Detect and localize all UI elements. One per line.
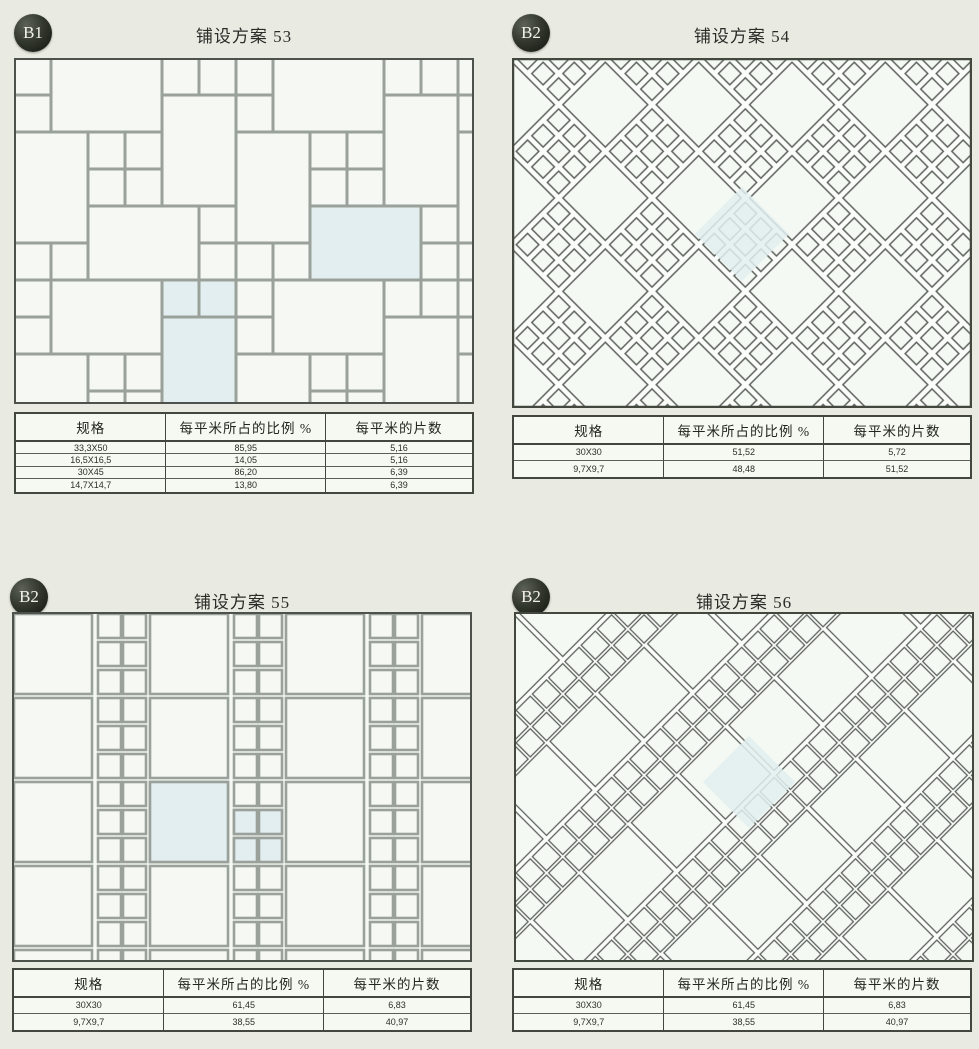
cell-pieces: 5,16 bbox=[326, 442, 472, 454]
col-header-ratio: 每平米所占的比例 % bbox=[664, 417, 824, 443]
cell-pieces: 6,83 bbox=[324, 998, 470, 1014]
table-54-header-row: 规格 每平米所占的比例 % 每平米的片数 bbox=[514, 417, 970, 445]
cell-pieces: 5,72 bbox=[824, 445, 970, 461]
panel-53-title: 铺设方案 53 bbox=[14, 22, 474, 47]
col-header-pieces: 每平米的片数 bbox=[326, 414, 472, 440]
cell-spec: 16,5X16,5 bbox=[16, 454, 166, 466]
panel-scheme-54: B2 铺设方案 54 规格 每平 bbox=[498, 0, 979, 520]
cell-spec: 9,7X9,7 bbox=[514, 461, 664, 477]
cell-spec: 14,7X14,7 bbox=[16, 479, 166, 491]
cell-pieces: 40,97 bbox=[824, 1014, 970, 1030]
table-row: 9,7X9,7 38,55 40,97 bbox=[14, 1014, 470, 1030]
panel-scheme-55: B2 铺设方案 55 规格 每平米所占的比例 % 每平米 bbox=[0, 564, 489, 1049]
col-header-spec: 规格 bbox=[514, 970, 664, 996]
cell-pieces: 5,16 bbox=[326, 454, 472, 466]
cell-spec: 30X45 bbox=[16, 467, 166, 479]
col-header-spec: 规格 bbox=[16, 414, 166, 440]
table-56-header-row: 规格 每平米所占的比例 % 每平米的片数 bbox=[514, 970, 970, 998]
cell-pieces: 40,97 bbox=[324, 1014, 470, 1030]
panel-56-title: 铺设方案 56 bbox=[514, 588, 974, 613]
col-header-ratio: 每平米所占的比例 % bbox=[664, 970, 824, 996]
col-header-pieces: 每平米的片数 bbox=[824, 417, 970, 443]
table-row: 9,7X9,7 38,55 40,97 bbox=[514, 1014, 970, 1030]
cell-spec: 30X30 bbox=[514, 445, 664, 461]
panel-55-title: 铺设方案 55 bbox=[12, 588, 472, 613]
cell-spec: 30X30 bbox=[514, 998, 664, 1014]
cell-ratio: 48,48 bbox=[664, 461, 824, 477]
cell-ratio: 38,55 bbox=[164, 1014, 324, 1030]
cell-spec: 30X30 bbox=[14, 998, 164, 1014]
cell-spec: 9,7X9,7 bbox=[514, 1014, 664, 1030]
col-header-ratio: 每平米所占的比例 % bbox=[166, 414, 326, 440]
cell-ratio: 51,52 bbox=[664, 445, 824, 461]
catalog-page: { "page": { "description": "Tile laying … bbox=[0, 0, 979, 1049]
table-row: 30X45 86,20 6,39 bbox=[16, 467, 472, 479]
tile-diagram-53 bbox=[14, 58, 474, 404]
table-row: 14,7X14,7 13,80 6,39 bbox=[16, 479, 472, 491]
table-row: 30X30 61,45 6,83 bbox=[14, 998, 470, 1014]
cell-pieces: 6,39 bbox=[326, 479, 472, 491]
cell-ratio: 61,45 bbox=[164, 998, 324, 1014]
table-row: 30X30 61,45 6,83 bbox=[514, 998, 970, 1014]
panel-scheme-56: B2 铺设方案 56 规格 每平米所占的比例 % 每平米的片数 30X30 bbox=[498, 564, 979, 1049]
cell-spec: 9,7X9,7 bbox=[14, 1014, 164, 1030]
panel-scheme-53: B1 铺设方案 53 bbox=[0, 0, 489, 520]
cell-ratio: 86,20 bbox=[166, 467, 326, 479]
table-55-header-row: 规格 每平米所占的比例 % 每平米的片数 bbox=[14, 970, 470, 998]
cell-ratio: 61,45 bbox=[664, 998, 824, 1014]
spec-table-54: 规格 每平米所占的比例 % 每平米的片数 30X30 51,52 5,72 9,… bbox=[512, 415, 972, 479]
tile-diagram-55 bbox=[12, 612, 472, 962]
spec-table-55: 规格 每平米所占的比例 % 每平米的片数 30X30 61,45 6,83 9,… bbox=[12, 968, 472, 1032]
table-row: 9,7X9,7 48,48 51,52 bbox=[514, 461, 970, 477]
cell-ratio: 38,55 bbox=[664, 1014, 824, 1030]
cell-spec: 33,3X50 bbox=[16, 442, 166, 454]
table-53-header-row: 规格 每平米所占的比例 % 每平米的片数 bbox=[16, 414, 472, 442]
table-row: 33,3X50 85,95 5,16 bbox=[16, 442, 472, 454]
table-row: 16,5X16,5 14,05 5,16 bbox=[16, 454, 472, 466]
col-header-pieces: 每平米的片数 bbox=[824, 970, 970, 996]
cell-pieces: 51,52 bbox=[824, 461, 970, 477]
tile-diagram-56 bbox=[514, 612, 974, 962]
cell-pieces: 6,83 bbox=[824, 998, 970, 1014]
table-row: 30X30 51,52 5,72 bbox=[514, 445, 970, 461]
spec-table-53: 规格 每平米所占的比例 % 每平米的片数 33,3X50 85,95 5,16 … bbox=[14, 412, 474, 494]
col-header-spec: 规格 bbox=[14, 970, 164, 996]
cell-ratio: 13,80 bbox=[166, 479, 326, 491]
col-header-ratio: 每平米所占的比例 % bbox=[164, 970, 324, 996]
spec-table-56: 规格 每平米所占的比例 % 每平米的片数 30X30 61,45 6,83 9,… bbox=[512, 968, 972, 1032]
panel-54-title: 铺设方案 54 bbox=[512, 22, 972, 47]
tile-diagram-54 bbox=[512, 58, 972, 408]
col-header-pieces: 每平米的片数 bbox=[324, 970, 470, 996]
cell-ratio: 14,05 bbox=[166, 454, 326, 466]
cell-ratio: 85,95 bbox=[166, 442, 326, 454]
cell-pieces: 6,39 bbox=[326, 467, 472, 479]
col-header-spec: 规格 bbox=[514, 417, 664, 443]
